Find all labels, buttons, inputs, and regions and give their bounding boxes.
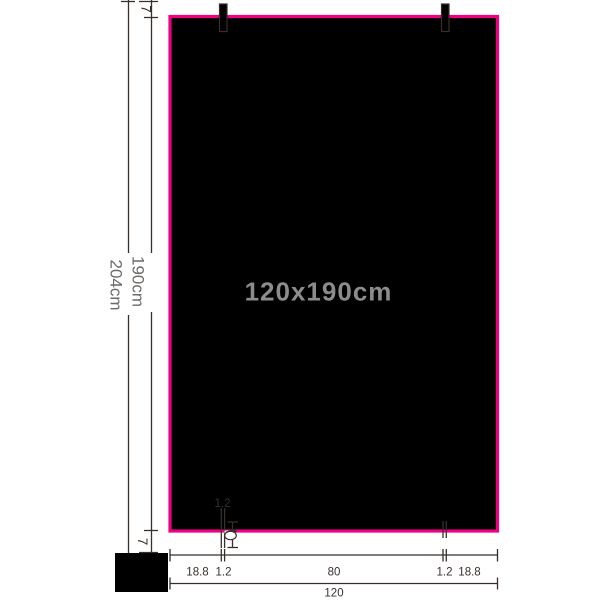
svg-text:120: 120 xyxy=(324,588,343,600)
svg-text:1.2: 1.2 xyxy=(216,567,232,579)
svg-text:204cm: 204cm xyxy=(107,259,126,310)
svg-text:80: 80 xyxy=(328,567,341,579)
svg-text:120x190cm: 120x190cm xyxy=(245,277,393,307)
svg-text:7: 7 xyxy=(139,5,154,13)
svg-text:190cm: 190cm xyxy=(129,256,148,307)
svg-text:1.2: 1.2 xyxy=(215,498,231,510)
svg-text:18.8: 18.8 xyxy=(186,567,208,579)
svg-text:7: 7 xyxy=(135,538,150,546)
svg-text:18.8: 18.8 xyxy=(458,567,480,579)
svg-text:1.2: 1.2 xyxy=(437,567,453,579)
